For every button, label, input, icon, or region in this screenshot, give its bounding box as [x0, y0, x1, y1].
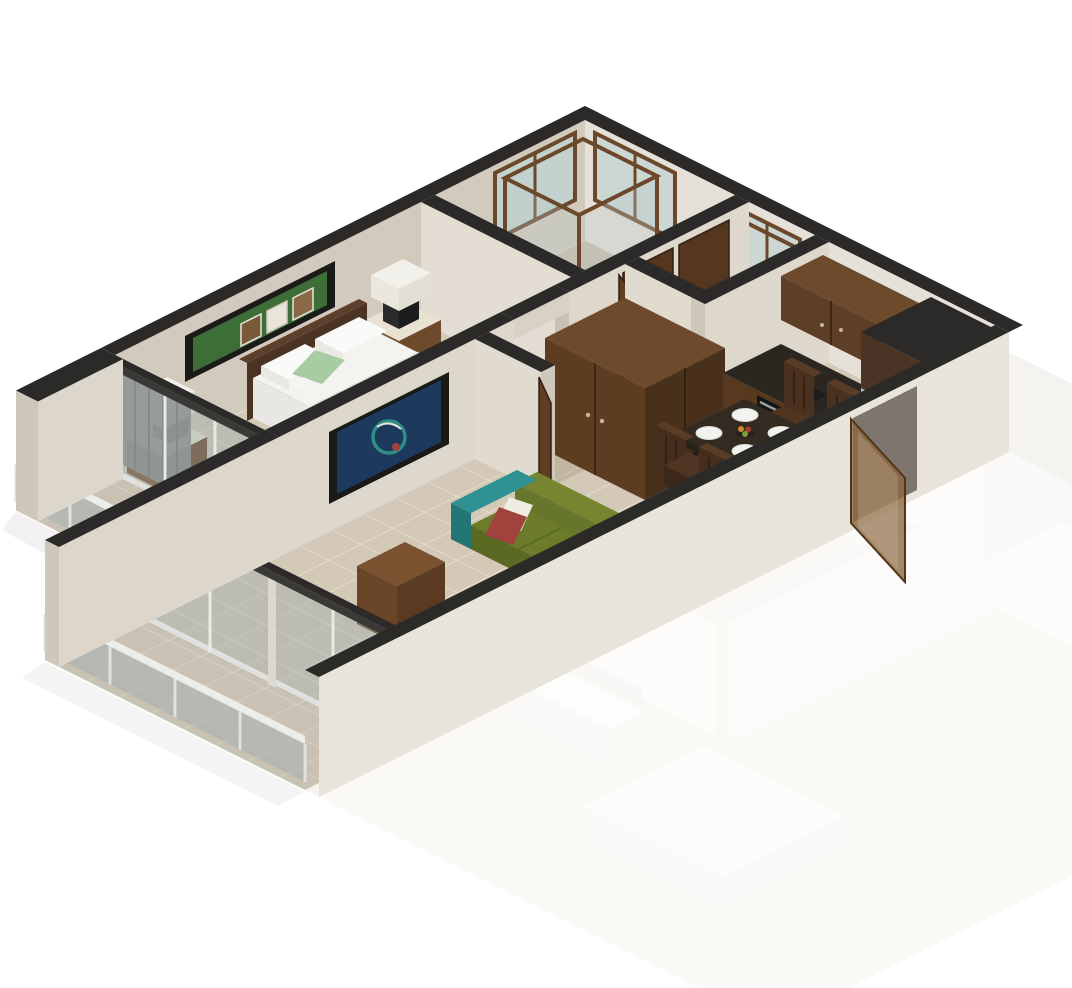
- isometric-floorplan-render: [0, 0, 1072, 988]
- floorplan-canvas: [0, 0, 1072, 988]
- roll-pillow: [293, 378, 311, 389]
- slider-mullion: [268, 566, 276, 688]
